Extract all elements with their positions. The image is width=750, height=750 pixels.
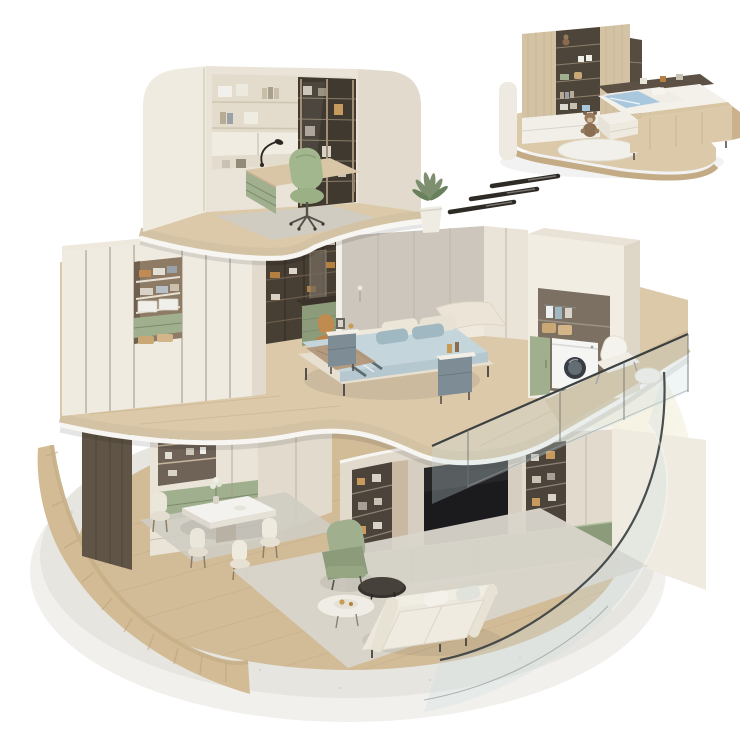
motion-dashes [450,176,558,212]
green-cabinet-door [530,336,550,396]
study-left-wall [143,66,206,232]
inset-round-rug [558,139,638,161]
open-wardrobe-shelves [134,257,182,344]
kids-bedroom-vignette [499,24,740,178]
inset-curved-wall-stub [499,82,517,160]
top-floor-study [140,66,422,263]
study-right-wall [358,69,421,212]
apartment-cutaway-illustration [0,0,750,750]
render-canvas [0,0,750,750]
